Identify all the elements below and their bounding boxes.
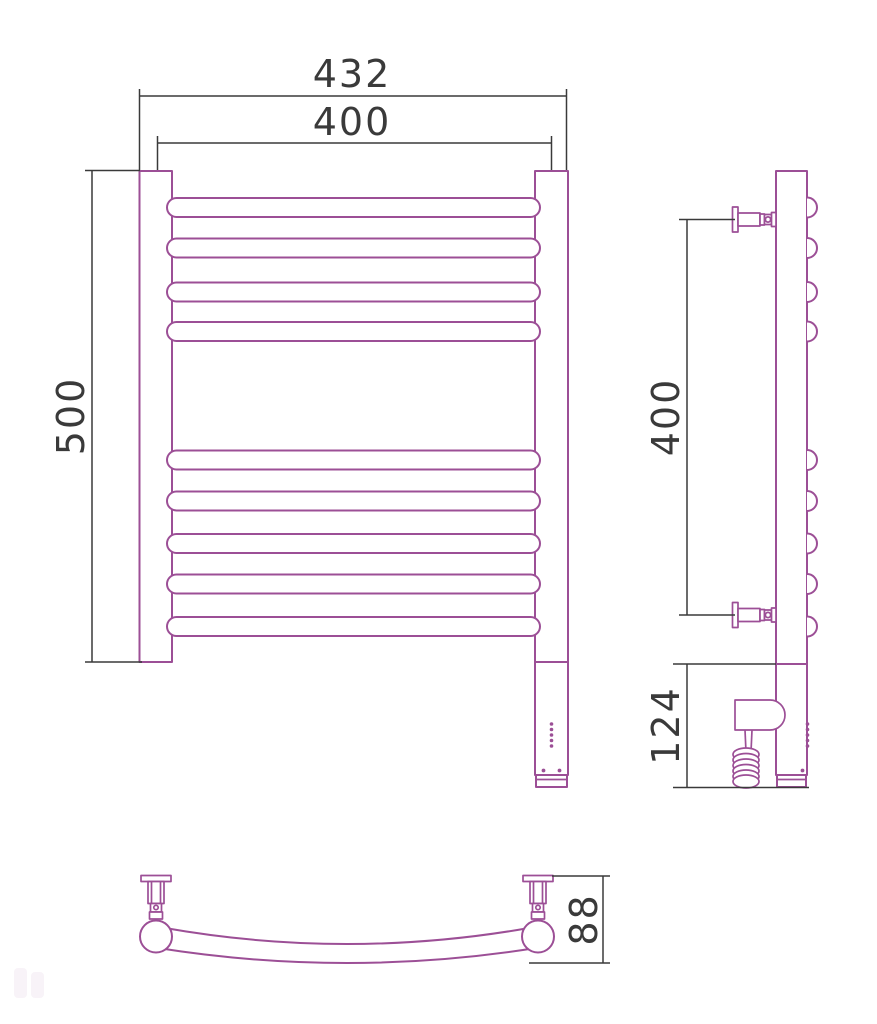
dimension-label-432: 432 — [313, 52, 392, 96]
led-dot — [550, 733, 554, 737]
rung — [167, 575, 540, 594]
mount-pin-circle — [154, 905, 158, 909]
led-dot — [806, 728, 810, 732]
front-heater-housing — [535, 662, 568, 775]
rung — [167, 198, 540, 217]
mount-stem — [738, 609, 760, 622]
rung-bump — [807, 282, 817, 302]
dimension-height: 500 — [49, 171, 142, 663]
rung-bump — [807, 238, 817, 258]
mount-pin-circle — [536, 905, 540, 909]
rung-bump — [807, 534, 817, 554]
mount-stem — [738, 213, 760, 226]
rung-bump — [807, 450, 817, 470]
rung-bump — [807, 574, 817, 594]
side-wall-mount-top — [733, 207, 777, 232]
towel-rail-drawing: 432 400 500 400 124 — [0, 0, 877, 1024]
dimension-label-400-side: 400 — [644, 378, 688, 457]
front-screw-hole-left — [542, 769, 546, 773]
mount-collar — [150, 912, 163, 919]
dimension-rail-width: 400 — [158, 100, 552, 170]
mount-collar — [532, 912, 545, 919]
mount-pin-circle — [765, 612, 770, 617]
rung — [167, 322, 540, 341]
mount-flange — [523, 876, 553, 882]
front-heater-bottom-cap — [536, 775, 567, 787]
bottom-mount-right — [523, 876, 553, 920]
mount-stem — [530, 882, 546, 904]
mount-collar — [772, 608, 777, 622]
front-rungs — [167, 198, 540, 636]
led-dot — [550, 722, 554, 726]
bottom-right-post-circle — [522, 921, 554, 953]
side-screw-hole — [801, 769, 805, 773]
side-view — [733, 171, 818, 788]
side-wall-mount-bottom — [733, 603, 777, 628]
bottom-tube-lower-edge — [158, 948, 536, 963]
heating-element-body — [735, 700, 785, 730]
bottom-view — [140, 876, 554, 964]
bottom-tube-upper-edge — [165, 928, 529, 944]
bottom-left-post-circle — [140, 921, 172, 953]
side-rung-bumps — [807, 198, 817, 637]
mount-collar — [772, 213, 777, 227]
led-dot — [806, 739, 810, 743]
led-dot — [550, 739, 554, 743]
watermark — [14, 968, 44, 998]
front-screw-hole-right — [558, 769, 562, 773]
led-dot — [806, 744, 810, 748]
mount-flange — [141, 876, 171, 882]
dimension-mount-spacing: 400 — [644, 220, 735, 616]
rung — [167, 239, 540, 258]
rung-bump — [807, 491, 817, 511]
mount-stem — [148, 882, 164, 904]
led-dot — [806, 733, 810, 737]
side-heater-bottom-cap — [777, 775, 806, 787]
rung — [167, 534, 540, 553]
dimension-label-500: 500 — [49, 377, 93, 456]
front-view — [140, 171, 569, 787]
rung-bump — [807, 617, 817, 637]
rung — [167, 617, 540, 636]
rung — [167, 492, 540, 511]
technical-drawing-page: 432 400 500 400 124 — [0, 0, 877, 1024]
bottom-mount-left — [141, 876, 171, 920]
led-dot — [550, 744, 554, 748]
led-dot — [550, 728, 554, 732]
coiled-cable — [733, 748, 759, 788]
side-post-bar — [776, 171, 807, 664]
led-dot — [806, 722, 810, 726]
mount-pin-circle — [765, 217, 770, 222]
rung — [167, 283, 540, 302]
rung-bump — [807, 322, 817, 342]
dimension-label-124: 124 — [644, 686, 688, 765]
coil-loop — [733, 775, 759, 788]
dimension-label-400-top: 400 — [313, 100, 392, 144]
dimension-label-88: 88 — [562, 893, 606, 945]
rung — [167, 451, 540, 470]
rung-bump — [807, 198, 817, 218]
